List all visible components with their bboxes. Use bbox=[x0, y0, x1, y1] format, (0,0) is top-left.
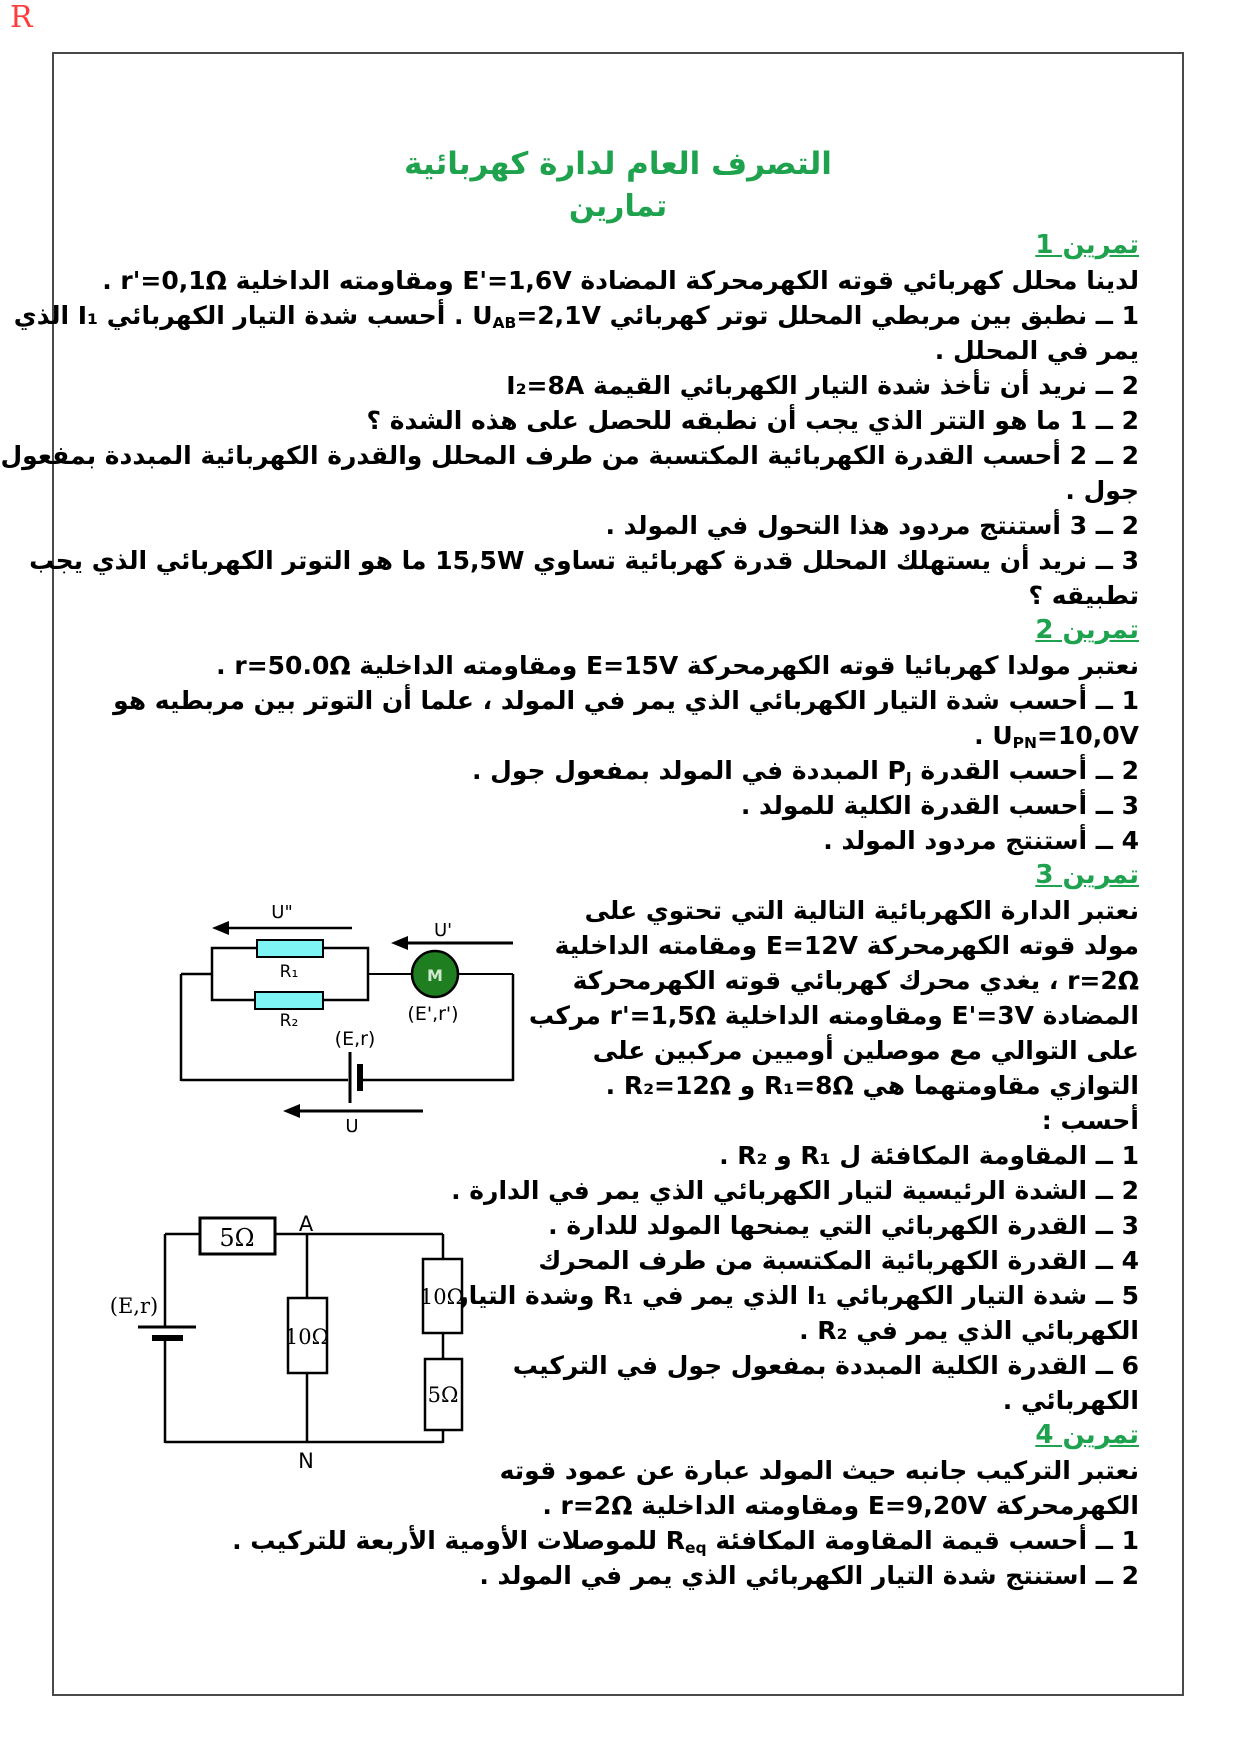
exercise-1-body: لدينا محلل كهربائي قوته الكهرمحركة المضا… bbox=[97, 263, 1139, 613]
text-line: 3 ــ أحسب القدرة الكلية للمولد . bbox=[97, 788, 1139, 823]
resistor-r1 bbox=[257, 940, 323, 957]
branch-resistor-top-label: 10Ω bbox=[420, 1285, 464, 1309]
text-line: 1 ــ أحسب شدة التيار الكهربائي الذي يمر … bbox=[97, 683, 1139, 718]
text-line: تطبيقه ؟ bbox=[97, 578, 1139, 613]
motor-label: M bbox=[427, 966, 443, 985]
text-line: 2 ــ أحسب القدرة PJ المبددة في المولد بم… bbox=[97, 753, 1139, 788]
battery-params-label: (E,r) bbox=[335, 1028, 376, 1050]
u-label: U bbox=[345, 1116, 358, 1137]
node-n-label: N bbox=[298, 1449, 314, 1473]
circuit-diagram-2: 5Ω A 10Ω 10Ω 5Ω (E,r) N bbox=[100, 1195, 470, 1480]
text-line: UPN=10,0V . bbox=[97, 718, 1139, 753]
resistor-r2 bbox=[255, 992, 323, 1009]
exercise-1-heading: تمرين 1 bbox=[97, 228, 1139, 263]
motor-params-label: (E',r') bbox=[407, 1003, 458, 1025]
middle-resistor-label: 10Ω bbox=[285, 1325, 329, 1349]
text-line: 2 ــ نريد أن تأخذ شدة التيار الكهربائي ا… bbox=[97, 368, 1139, 403]
u-second-voltage-arrow-icon bbox=[212, 921, 352, 935]
battery-symbol bbox=[350, 1052, 360, 1103]
text-line: الكهرمحركة E=9,20V ومقاومته الداخلية r=2… bbox=[97, 1488, 1139, 1523]
battery-params-label: (E,r) bbox=[110, 1294, 158, 1318]
text-line: 2 ــ 2 أحسب القدرة الكهربائية المكتسبة م… bbox=[97, 438, 1139, 473]
resistor-r2-label: R₂ bbox=[280, 1011, 299, 1031]
worksheet-page: R التصرف العام لدارة كهربائية تمارين تمر… bbox=[0, 0, 1240, 1754]
text-line: 2 ــ 3 أستنتج مردود هذا التحول في المولد… bbox=[97, 508, 1139, 543]
page-subtitle: تمارين bbox=[97, 186, 1139, 228]
exercise-2-heading: تمرين 2 bbox=[97, 613, 1139, 648]
exercise-3-heading: تمرين 3 bbox=[97, 858, 1139, 893]
exercise-2-body: نعتبر مولدا كهربائيا قوته الكهرمحركة E=1… bbox=[97, 648, 1139, 858]
page-title: التصرف العام لدارة كهربائية bbox=[97, 142, 1139, 186]
circuit-diagram-1: U" R₁ R₂ U' M (E',r') (E,r) bbox=[160, 895, 520, 1145]
text-line: 4 ــ أستنتج مردود المولد . bbox=[97, 823, 1139, 858]
u-second-label: U" bbox=[271, 902, 292, 923]
exercise-2-section: تمرين 2 نعتبر مولدا كهربائيا قوته الكهرم… bbox=[97, 613, 1139, 858]
u-prime-label: U' bbox=[434, 920, 452, 941]
text-line: جول . bbox=[97, 473, 1139, 508]
resistor-r1-label: R₁ bbox=[280, 962, 299, 982]
corner-watermark: R bbox=[10, 0, 33, 35]
text-line: يمر في المحلل . bbox=[97, 333, 1139, 368]
node-a-label: A bbox=[299, 1212, 314, 1236]
text-line: 2 ــ 1 ما هو التتر الذي يجب أن نطبقه للح… bbox=[97, 403, 1139, 438]
text-line: لدينا محلل كهربائي قوته الكهرمحركة المضا… bbox=[97, 263, 1139, 298]
battery-symbol bbox=[138, 1327, 196, 1338]
text-line: نعتبر مولدا كهربائيا قوته الكهرمحركة E=1… bbox=[97, 648, 1139, 683]
branch-resistor-bottom-label: 5Ω bbox=[428, 1383, 459, 1407]
series-resistor-label: 5Ω bbox=[219, 1224, 254, 1252]
text-line: 3 ــ نريد أن يستهلك المحلل قدرة كهربائية… bbox=[97, 543, 1139, 578]
text-line: 2 ــ استنتج شدة التيار الكهربائي الذي يم… bbox=[97, 1558, 1139, 1593]
exercise-1-section: تمرين 1 لدينا محلل كهربائي قوته الكهرمحر… bbox=[97, 228, 1139, 613]
text-line: 1 ــ أحسب قيمة المقاومة المكافئة Req للم… bbox=[97, 1523, 1139, 1558]
text-line: 1 ــ نطبق بين مربطي المحلل توتر كهربائي … bbox=[97, 298, 1139, 333]
